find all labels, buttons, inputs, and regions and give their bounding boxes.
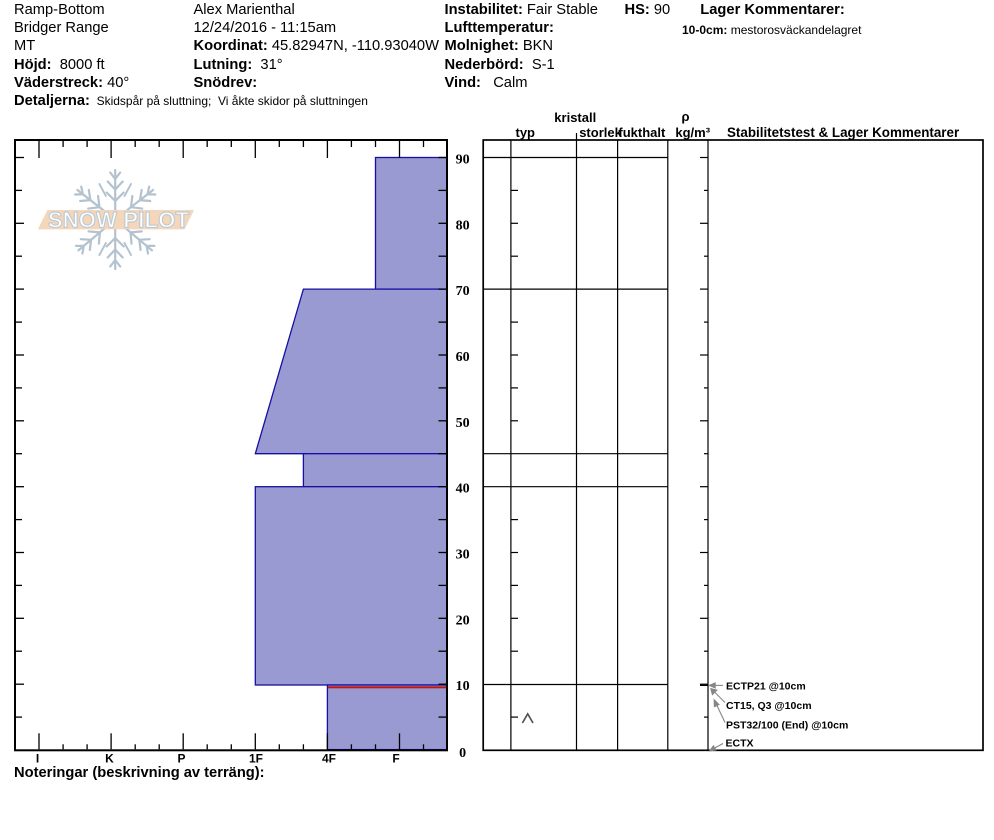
- svg-text:Noteringar (beskrivning av ter: Noteringar (beskrivning av terräng):: [14, 765, 265, 781]
- svg-text:90: 90: [456, 153, 470, 168]
- svg-text:80: 80: [456, 218, 470, 233]
- svg-text:fukthalt: fukthalt: [618, 125, 666, 140]
- svg-text:CT15, Q3 @10cm: CT15, Q3 @10cm: [726, 700, 812, 712]
- svg-text:70: 70: [456, 284, 470, 299]
- svg-text:ρ: ρ: [682, 109, 690, 124]
- svg-text:ECTP21 @10cm: ECTP21 @10cm: [726, 681, 806, 693]
- svg-text:SNOW PILOT: SNOW PILOT: [48, 208, 190, 233]
- svg-text:I: I: [36, 751, 39, 765]
- svg-text:F: F: [392, 751, 399, 765]
- svg-text:storlek: storlek: [579, 125, 622, 140]
- svg-text:30: 30: [456, 548, 470, 563]
- svg-text:10: 10: [456, 679, 470, 694]
- svg-text:Stabilitetstest & Lager Kommen: Stabilitetstest & Lager Kommentarer: [727, 125, 960, 140]
- svg-text:1F: 1F: [249, 751, 263, 765]
- svg-text:0: 0: [459, 746, 466, 761]
- svg-text:4F: 4F: [322, 751, 336, 765]
- svg-text:K: K: [105, 751, 114, 765]
- svg-text:kg/m³: kg/m³: [675, 125, 710, 140]
- svg-text:50: 50: [456, 416, 470, 431]
- svg-text:ECTX: ECTX: [726, 738, 754, 750]
- svg-text:40: 40: [456, 482, 470, 497]
- svg-text:20: 20: [456, 613, 470, 628]
- svg-text:PST32/100 (End) @10cm: PST32/100 (End) @10cm: [726, 720, 848, 732]
- svg-text:kristall: kristall: [554, 110, 596, 125]
- svg-text:typ: typ: [516, 125, 536, 140]
- svg-text:60: 60: [456, 350, 470, 365]
- svg-text:P: P: [177, 751, 185, 765]
